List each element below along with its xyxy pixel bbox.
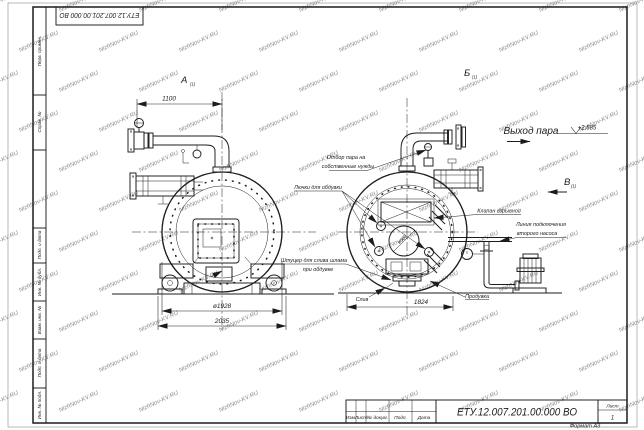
watermark-text: NizhNov-KV.RU	[218, 150, 260, 174]
frame-cell-label: Перв. примен.	[37, 36, 42, 67]
tb-col: Подп.	[394, 415, 407, 421]
watermark-text: NizhNov-KV.RU	[458, 310, 500, 334]
rear-steam-pipe	[399, 125, 466, 171]
watermark-text: NizhNov-KV.RU	[298, 70, 340, 94]
svg-text:(1): (1)	[190, 82, 196, 87]
watermark-text: NizhNov-KV.RU	[0, 70, 20, 94]
watermark-text: NizhNov-KV.RU	[58, 70, 100, 94]
svg-text:Лючки для обдувки: Лючки для обдувки	[293, 185, 342, 191]
tb-col: Лист	[354, 415, 367, 421]
watermark-layer: NizhNov-KV.RUNizhNov-KV.RUNizhNov-KV.RUN…	[0, 0, 644, 430]
watermark-text: NizhNov-KV.RU	[58, 310, 100, 334]
tb-col: № докум.	[367, 415, 388, 421]
watermark-text: NizhNov-KV.RU	[418, 110, 460, 134]
svg-text:Отбор пара на: Отбор пара на	[327, 155, 366, 161]
svg-text:Слив: Слив	[356, 297, 369, 303]
svg-text:при обдувке: при обдувке	[303, 267, 334, 273]
watermark-text: NizhNov-KV.RU	[418, 30, 460, 54]
watermark-text: NizhNov-KV.RU	[178, 110, 220, 134]
watermark-text: NizhNov-KV.RU	[0, 230, 20, 254]
dim-text: 1824	[414, 299, 429, 306]
front-steam-pipe	[128, 119, 231, 173]
watermark-text: NizhNov-KV.RU	[98, 30, 140, 54]
watermark-text: NizhNov-KV.RU	[618, 230, 644, 254]
watermark-text: NizhNov-KV.RU	[98, 270, 140, 294]
watermark-text: NizhNov-KV.RU	[58, 230, 100, 254]
watermark-text: NizhNov-KV.RU	[0, 150, 20, 174]
watermark-text: NizhNov-KV.RU	[138, 310, 180, 334]
watermark-text: NizhNov-KV.RU	[298, 230, 340, 254]
dim-text: 1100	[162, 96, 176, 103]
format-note: Формат А3	[570, 424, 601, 430]
svg-text:+2,685: +2,685	[578, 126, 597, 132]
sheet-label: Лист	[605, 404, 618, 410]
watermark-text: NizhNov-KV.RU	[498, 350, 540, 374]
front-manifold	[130, 173, 203, 204]
watermark-text: NizhNov-KV.RU	[618, 70, 644, 94]
watermark-text: NizhNov-KV.RU	[378, 310, 420, 334]
front-view: 1100 ø1928 2035 А (1)	[112, 75, 334, 332]
svg-text:В: В	[564, 177, 571, 188]
watermark-text: NizhNov-KV.RU	[258, 30, 300, 54]
watermark-text: NizhNov-KV.RU	[0, 0, 20, 14]
svg-text:Линия подключения: Линия подключения	[515, 222, 566, 228]
watermark-text: NizhNov-KV.RU	[618, 150, 644, 174]
dim-text: ø1928	[213, 303, 232, 310]
watermark-text: NizhNov-KV.RU	[338, 30, 380, 54]
frame-cell-label: Инв. № дубл.	[37, 268, 42, 296]
svg-text:А: А	[180, 75, 187, 86]
watermark-text: NizhNov-KV.RU	[178, 190, 220, 214]
watermark-text: NizhNov-KV.RU	[138, 150, 180, 174]
watermark-text: NizhNov-KV.RU	[298, 390, 340, 414]
view-label-b: Б (1)	[464, 68, 478, 80]
watermark-text: NizhNov-KV.RU	[178, 270, 220, 294]
view-label-v: В (1)	[548, 177, 577, 192]
watermark-text: NizhNov-KV.RU	[418, 350, 460, 374]
dim-text: 2035	[214, 318, 230, 325]
watermark-text: NizhNov-KV.RU	[578, 350, 620, 374]
document-number: ЕТУ.12.007.201.00.000 ВО	[457, 407, 577, 419]
watermark-text: NizhNov-KV.RU	[258, 350, 300, 374]
watermark-text: NizhNov-KV.RU	[578, 30, 620, 54]
annotation-drain: Слив	[356, 288, 385, 303]
svg-text:второго насоса: второго насоса	[517, 231, 558, 237]
sheet-frame: Перв. примен. Справ. № Подп. и дата Инв.…	[8, 3, 637, 427]
watermark-text: NizhNov-KV.RU	[498, 30, 540, 54]
watermark-text: NizhNov-KV.RU	[338, 350, 380, 374]
watermark-text: NizhNov-KV.RU	[378, 390, 420, 414]
watermark-text: NizhNov-KV.RU	[298, 310, 340, 334]
watermark-text: NizhNov-KV.RU	[618, 390, 644, 414]
view-label-a: А (1)	[180, 75, 196, 87]
svg-text:собственные нужды: собственные нужды	[322, 164, 374, 170]
svg-text:Б: Б	[464, 68, 470, 79]
frame-cell-label: Подп. и дата	[37, 230, 42, 259]
watermark-text: NizhNov-KV.RU	[538, 150, 580, 174]
watermark-text: NizhNov-KV.RU	[578, 190, 620, 214]
watermark-text: NizhNov-KV.RU	[58, 150, 100, 174]
watermark-text: NizhNov-KV.RU	[18, 190, 60, 214]
svg-text:Продувка: Продувка	[465, 294, 489, 300]
explosion-hatch	[378, 199, 434, 225]
watermark-text: NizhNov-KV.RU	[138, 390, 180, 414]
watermark-text: NizhNov-KV.RU	[338, 110, 380, 134]
rear-view: ø500	[281, 68, 608, 316]
boiler-general-view-drawing: NizhNov-KV.RUNizhNov-KV.RUNizhNov-KV.RUN…	[0, 0, 644, 430]
annotation-second-pump: Линия подключения второго насоса	[500, 222, 566, 241]
watermark-text: NizhNov-KV.RU	[98, 350, 140, 374]
steam-outlet-note: Выход пара	[504, 126, 559, 142]
watermark-text: NizhNov-KV.RU	[0, 390, 20, 414]
watermark-text: NizhNov-KV.RU	[538, 310, 580, 334]
watermark-text: NizhNov-KV.RU	[218, 70, 260, 94]
watermark-text: NizhNov-KV.RU	[218, 390, 260, 414]
watermark-text: NizhNov-KV.RU	[0, 310, 20, 334]
svg-text:Выход пара: Выход пара	[504, 126, 559, 137]
watermark-text: NizhNov-KV.RU	[138, 70, 180, 94]
drawing-sheet: NizhNov-KV.RUNizhNov-KV.RUNizhNov-KV.RUN…	[0, 0, 644, 430]
sheet-number: 1	[611, 416, 614, 422]
watermark-text: NizhNov-KV.RU	[178, 30, 220, 54]
watermark-text: NizhNov-KV.RU	[618, 310, 644, 334]
frame-cell-label: Инв. № подл.	[37, 391, 42, 420]
watermark-text: NizhNov-KV.RU	[258, 190, 300, 214]
watermark-text: NizhNov-KV.RU	[378, 70, 420, 94]
dim-1100: 1100	[137, 96, 222, 131]
watermark-text: NizhNov-KV.RU	[578, 270, 620, 294]
frame-cell-label: Взам. инв. №	[37, 306, 42, 334]
watermark-text: NizhNov-KV.RU	[178, 350, 220, 374]
watermark-text: NizhNov-KV.RU	[258, 110, 300, 134]
svg-text:Клапан взрывной: Клапан взрывной	[477, 208, 521, 215]
watermark-text: NizhNov-KV.RU	[98, 190, 140, 214]
watermark-text: NizhNov-KV.RU	[538, 70, 580, 94]
svg-text:Штуцер для слива шлама: Штуцер для слива шлама	[281, 258, 347, 264]
corner-stamp-number: ЕТУ.12.007.201.00.000 ВО	[59, 11, 139, 20]
watermark-text: NizhNov-KV.RU	[58, 390, 100, 414]
tb-col: Дата	[417, 415, 431, 421]
frame-cell-label: Справ. №	[37, 112, 42, 133]
svg-text:(1): (1)	[472, 75, 478, 80]
svg-text:(1): (1)	[571, 184, 577, 189]
frame-cell-label: Подп. и дата	[37, 348, 42, 377]
